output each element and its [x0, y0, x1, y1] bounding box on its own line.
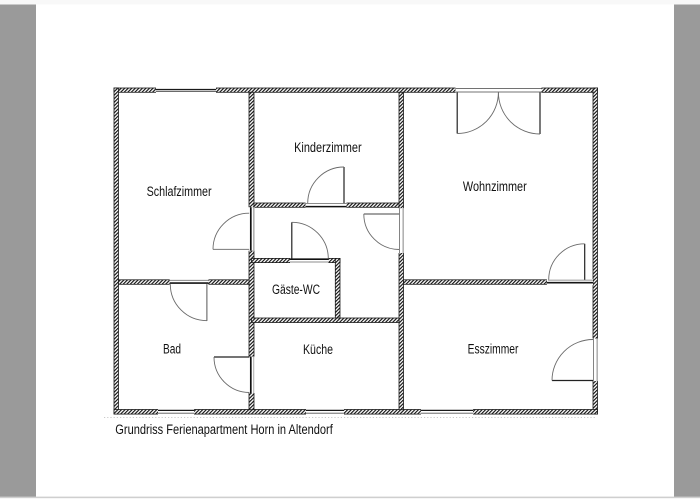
svg-text:Esszimmer: Esszimmer: [468, 341, 519, 356]
svg-text:Schlafzimmer: Schlafzimmer: [147, 184, 212, 199]
svg-text:Küche: Küche: [303, 342, 333, 357]
svg-text:Grundriss Ferienapartment Horn: Grundriss Ferienapartment Horn in Altend…: [115, 422, 333, 437]
svg-text:Gäste-WC: Gäste-WC: [272, 282, 320, 297]
svg-text:Kinderzimmer: Kinderzimmer: [294, 140, 362, 155]
svg-text:Bad: Bad: [163, 342, 181, 357]
svg-text:Wohnzimmer: Wohnzimmer: [463, 179, 527, 194]
